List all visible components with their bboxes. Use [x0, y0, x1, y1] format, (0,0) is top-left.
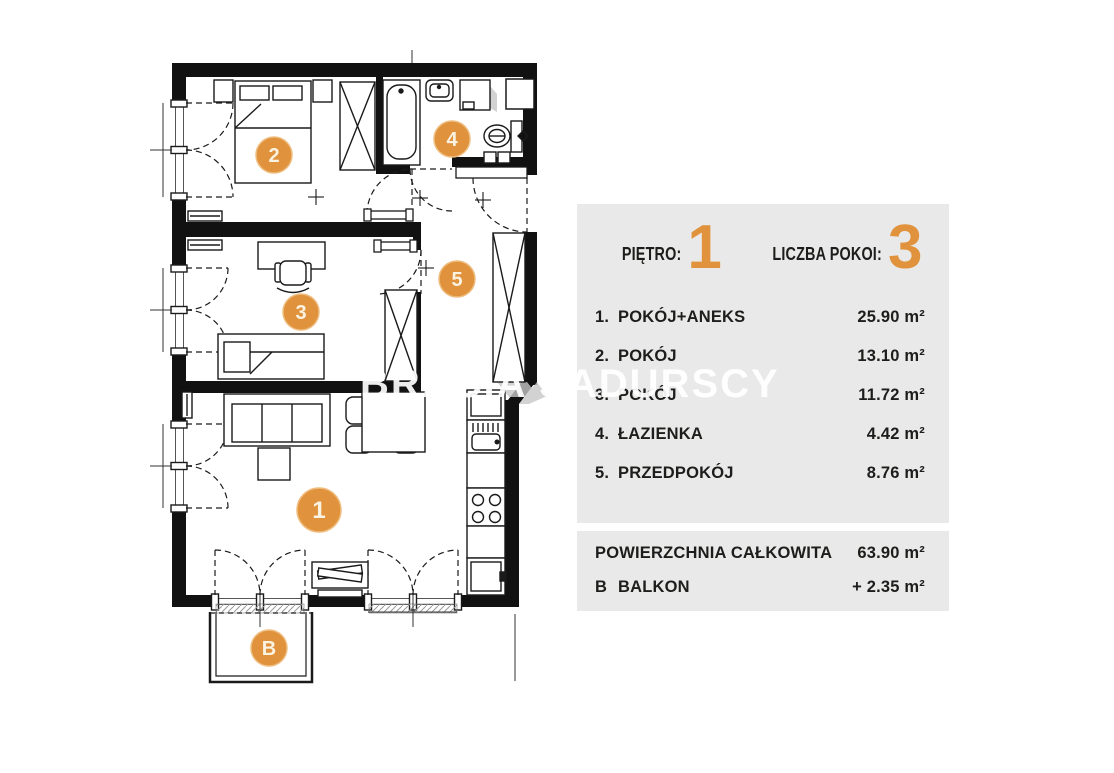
room-area: 25.90 m² [857, 308, 925, 327]
rooms-count-value: 3 [888, 224, 922, 272]
room-number: 5. [595, 464, 618, 483]
kitchen [467, 390, 506, 595]
sofa [224, 394, 330, 446]
rooms-count-label: LICZBA POKOI: [772, 244, 882, 265]
room-row: 1. POKÓJ+ANEKS 25.90 m² [595, 308, 925, 347]
room-number: 2. [595, 347, 618, 366]
wall-niche [506, 79, 534, 109]
dining-set [346, 392, 425, 453]
room-name: POKÓJ [618, 386, 858, 405]
room-area: 4.42 m² [867, 425, 925, 444]
bathtub [383, 80, 420, 165]
room-row: 5. PRZEDPOKÓJ 8.76 m² [595, 464, 925, 503]
floorplan-page: 1 2 3 4 5 B PIĘTRO: 1 LICZBA POKOI: 3 1. [0, 0, 1114, 773]
badge-room-3: 3 [283, 294, 319, 330]
desk [258, 242, 325, 293]
room-area: 13.10 m² [857, 347, 925, 366]
room-row: 3. POKÓJ 11.72 m² [595, 386, 925, 425]
room-number: 1. [595, 308, 618, 327]
washing-machine [460, 80, 490, 110]
total-area-label: POWIERZCHNIA CAŁKOWITA [595, 544, 832, 563]
svg-text:5: 5 [451, 269, 462, 291]
balcony-prefix: B [595, 578, 618, 597]
room-area: 11.72 m² [858, 386, 925, 405]
badge-room-1: 1 [297, 488, 341, 532]
toilet [484, 121, 528, 163]
wardrobe-hall [493, 233, 525, 382]
balcony-row: B BALKON + 2.35 m² [595, 573, 925, 601]
floor-label: PIĘTRO: [622, 244, 682, 265]
svg-text:B: B [262, 638, 276, 660]
rooms-count-header: LICZBA POKOI: 3 [745, 220, 922, 272]
svg-text:3: 3 [295, 302, 306, 324]
floor-value: 1 [687, 224, 721, 272]
badge-room-2: 2 [256, 137, 292, 173]
room-name: POKÓJ [618, 347, 857, 366]
room-list: 1. POKÓJ+ANEKS 25.90 m² 2. POKÓJ 13.10 m… [595, 308, 925, 503]
tv-stand [312, 562, 368, 597]
room-number: 4. [595, 425, 618, 444]
room-row: 4. ŁAZIENKA 4.42 m² [595, 425, 925, 464]
total-area-value: 63.90 m² [857, 544, 925, 563]
badge-room-5: 5 [439, 261, 475, 297]
room-name: PRZEDPOKÓJ [618, 464, 867, 483]
washbasin [426, 80, 453, 101]
coffee-table [258, 448, 290, 480]
floor-header: PIĘTRO: 1 [607, 220, 722, 272]
summary-panel: POWIERZCHNIA CAŁKOWITA 63.90 m² B BALKON… [577, 531, 949, 611]
badge-room-4: 4 [434, 121, 470, 157]
wardrobe-small [385, 290, 417, 381]
balcony-label: BALKON [618, 578, 690, 597]
bed-single [218, 334, 324, 379]
room-area: 8.76 m² [867, 464, 925, 483]
wardrobe [340, 82, 375, 170]
badge-balcony: B [251, 630, 287, 666]
svg-text:1: 1 [312, 497, 325, 524]
room-row: 2. POKÓJ 13.10 m² [595, 347, 925, 386]
info-panel: PIĘTRO: 1 LICZBA POKOI: 3 1. POKÓJ+ANEKS… [577, 204, 949, 523]
svg-text:4: 4 [446, 129, 458, 151]
balcony-value: + 2.35 m² [852, 578, 925, 597]
svg-text:2: 2 [268, 145, 279, 167]
room-name: ŁAZIENKA [618, 425, 867, 444]
total-area-row: POWIERZCHNIA CAŁKOWITA 63.90 m² [595, 539, 925, 567]
room-name: POKÓJ+ANEKS [618, 308, 857, 327]
room-number: 3. [595, 386, 618, 405]
